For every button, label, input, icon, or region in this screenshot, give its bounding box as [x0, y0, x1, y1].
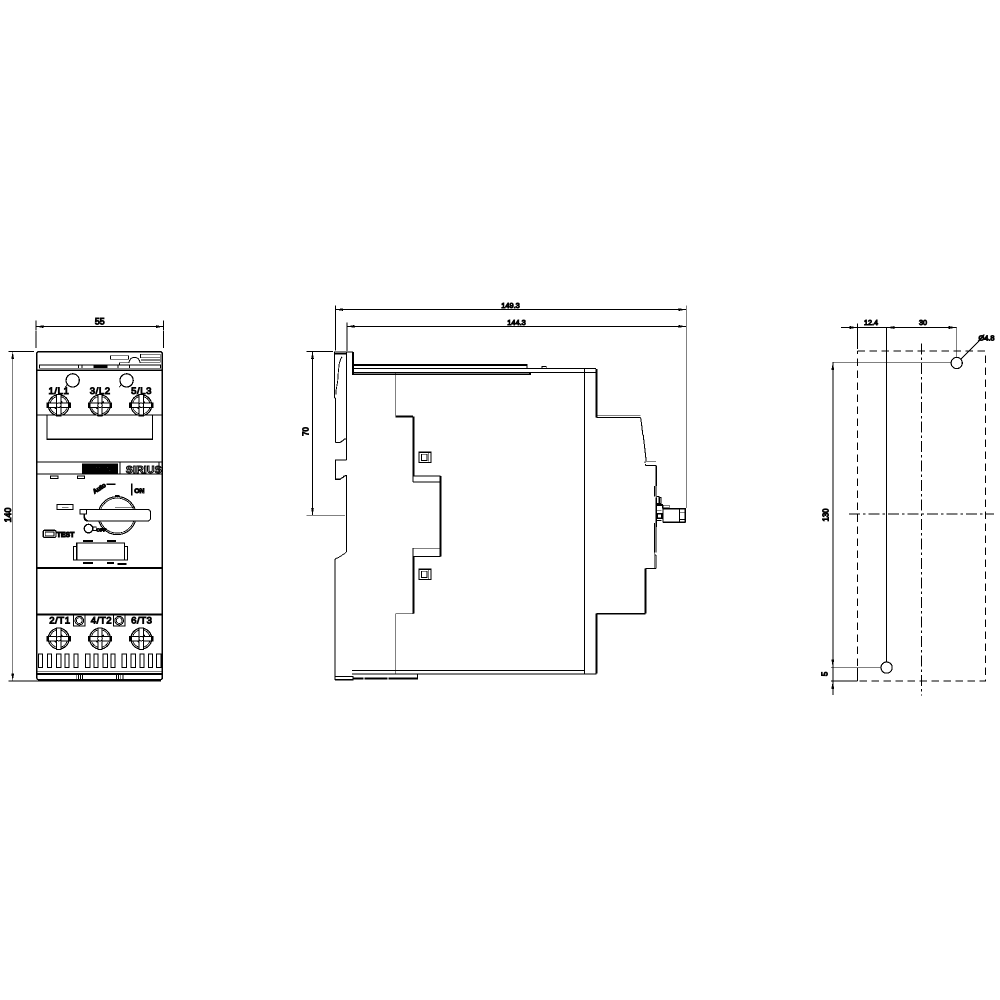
svg-text:2/T1: 2/T1 [49, 616, 70, 627]
svg-text:140: 140 [3, 508, 13, 523]
svg-text:144.3: 144.3 [507, 318, 526, 327]
svg-text:5/L3: 5/L3 [131, 386, 152, 397]
svg-text:70: 70 [302, 427, 311, 436]
svg-text:3/L2: 3/L2 [90, 386, 111, 397]
svg-text:30: 30 [919, 318, 927, 327]
svg-text:1/L1: 1/L1 [49, 386, 70, 397]
svg-text:Ø4.8: Ø4.8 [979, 334, 995, 343]
svg-text:4/T2: 4/T2 [91, 616, 112, 627]
svg-text:OFF: OFF [96, 527, 106, 533]
svg-text:5: 5 [821, 671, 830, 676]
svg-text:55: 55 [95, 317, 105, 327]
svg-text:130: 130 [822, 508, 831, 522]
svg-text:149.3: 149.3 [501, 301, 520, 310]
svg-text:SIRIUS: SIRIUS [126, 465, 162, 476]
svg-text:12.4: 12.4 [864, 318, 878, 327]
svg-text:TEST: TEST [57, 532, 75, 539]
svg-text:SIEMENS: SIEMENS [84, 466, 117, 473]
svg-text:Auto: Auto [92, 482, 108, 496]
svg-text:ON: ON [134, 488, 144, 495]
svg-text:6/T3: 6/T3 [131, 616, 152, 627]
